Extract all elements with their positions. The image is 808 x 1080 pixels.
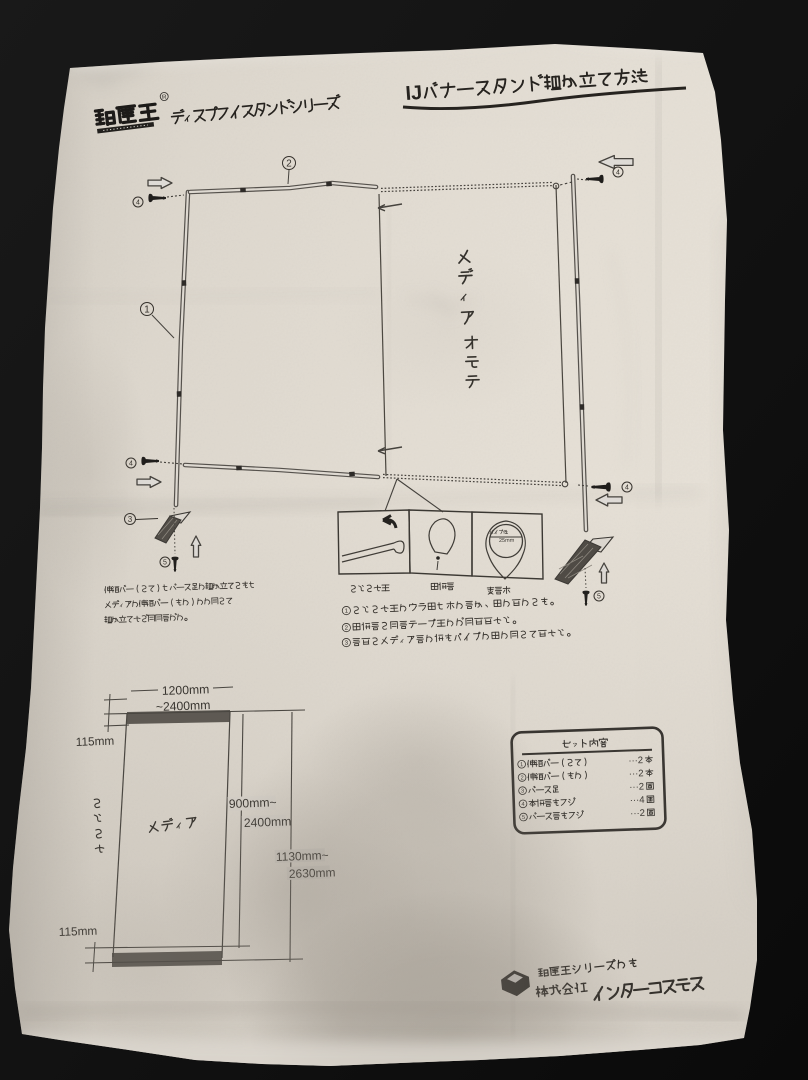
svg-text:1: 1 [144, 304, 149, 315]
svg-text:4: 4 [616, 169, 620, 176]
svg-text:2: 2 [286, 158, 291, 169]
svg-text:4: 4 [136, 199, 140, 206]
svg-text:J: J [410, 82, 423, 105]
